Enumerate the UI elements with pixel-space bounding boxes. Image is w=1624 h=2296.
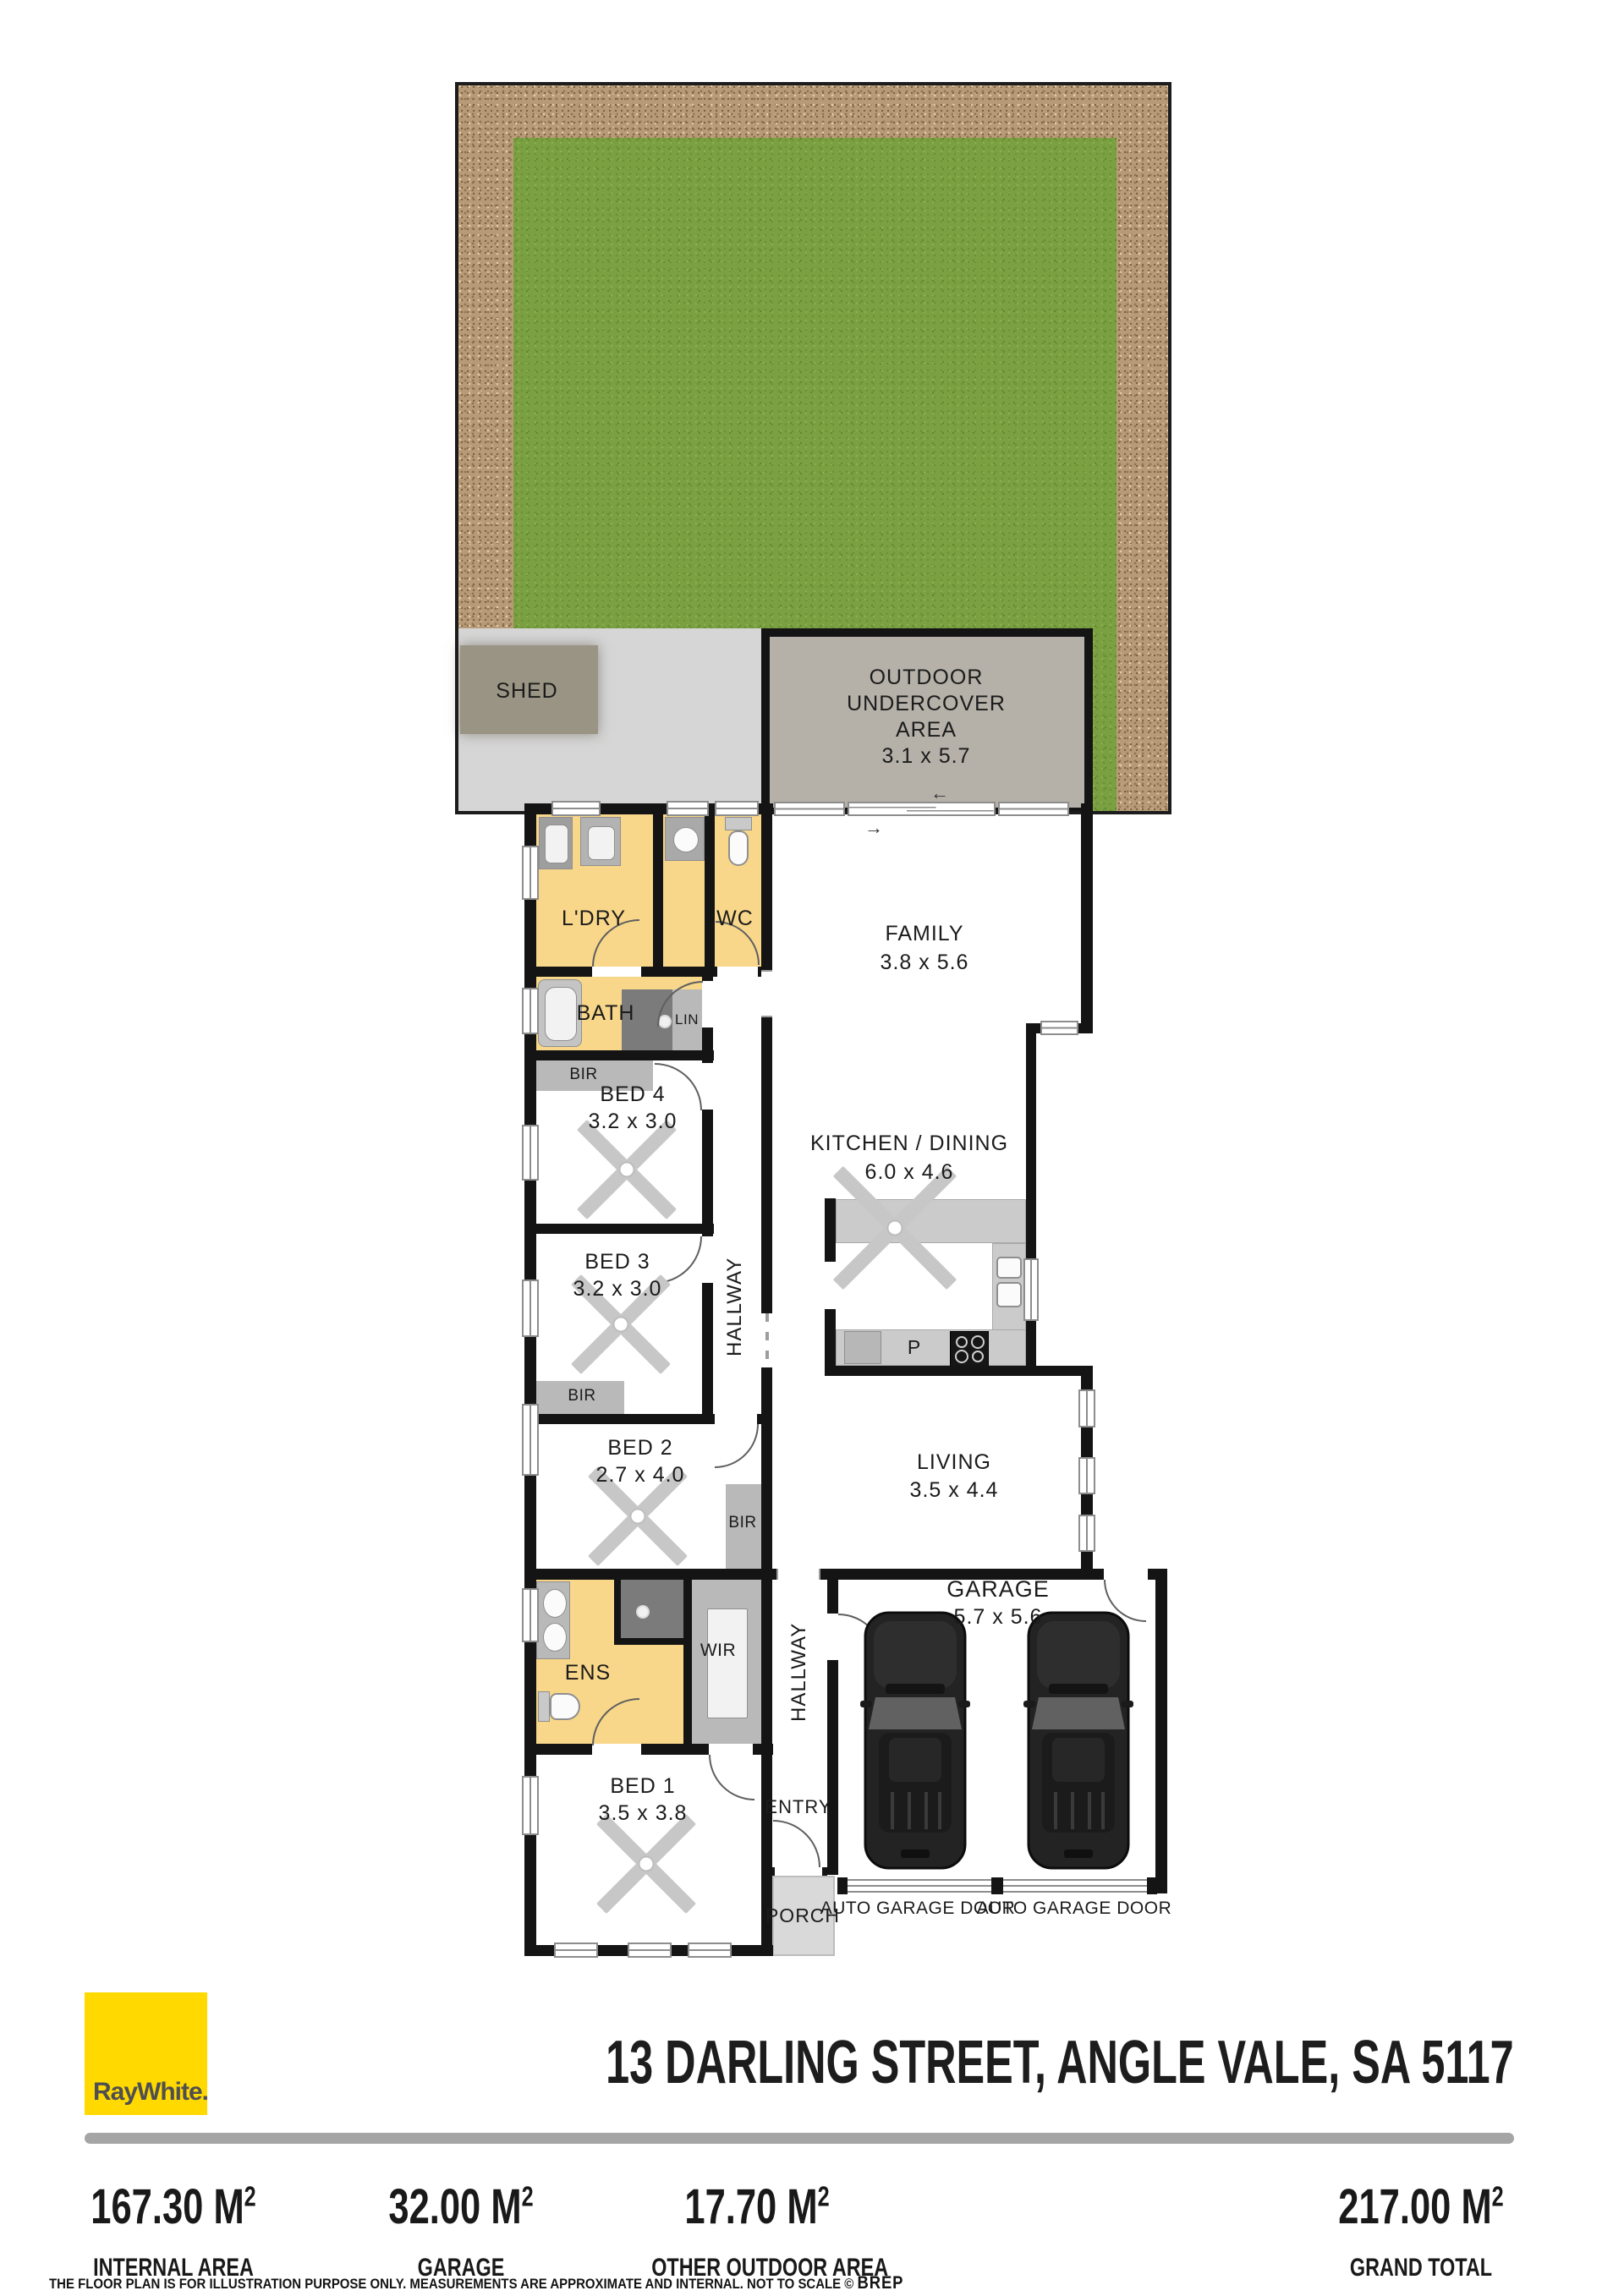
fridge-icon: [844, 1331, 881, 1364]
kitchen-label: KITCHEN / DINING: [799, 1132, 1019, 1156]
wall: [702, 977, 713, 1424]
door-gap: [715, 1414, 757, 1424]
window: [667, 801, 709, 816]
window: [1040, 1021, 1078, 1035]
stat-value: 17.70 M2: [656, 2178, 859, 2235]
wall: [524, 1224, 714, 1234]
window: [522, 1125, 539, 1181]
ensuite-shower: [621, 1580, 683, 1639]
laundry-sink-icon: [580, 817, 621, 866]
door-gap: [709, 1744, 753, 1755]
stat-value: 217.00 M2: [1319, 2178, 1522, 2235]
wall: [825, 1309, 836, 1376]
car-icon: [1023, 1609, 1133, 1871]
washer-icon: [539, 817, 573, 869]
window: [551, 801, 601, 816]
squared-sup: 2: [244, 2182, 256, 2213]
wall: [614, 1638, 689, 1645]
floorplan-page: SHED OUTDOOR UNDERCOVER AREA 3.1 x 5.7 L…: [0, 0, 1624, 2296]
family-dims: 3.8 x 5.6: [840, 951, 1009, 975]
stat-label: GRAND TOTAL: [1315, 2254, 1527, 2282]
window: [998, 802, 1069, 816]
door-gap: [827, 1614, 838, 1660]
stat-grand-total: 217.00 M2 GRAND TOTAL: [1286, 2178, 1556, 2282]
stove-icon: [950, 1331, 989, 1367]
stat-garage: 32.00 M2 GARAGE: [326, 2178, 596, 2282]
garage-label: GARAGE: [913, 1576, 1083, 1603]
toilet-bowl-icon: [728, 830, 749, 866]
kitchen-sink-icon: [996, 1257, 1022, 1279]
bed4-label: BED 4: [548, 1082, 717, 1107]
kitchen-sink2-icon: [996, 1282, 1022, 1307]
family-label: FAMILY: [840, 922, 1009, 946]
bed3-label: BED 3: [533, 1250, 702, 1274]
room-x-marker: [578, 1121, 675, 1218]
toilet-icon: [725, 817, 752, 830]
wc-label: WC: [650, 907, 820, 931]
hallway-label: HALLWAY: [787, 1600, 811, 1744]
wall: [1155, 1569, 1167, 1893]
bed1-label: BED 1: [558, 1774, 727, 1799]
stat-value: 167.30 M2: [72, 2178, 275, 2235]
ensuite-label: ENS: [503, 1661, 672, 1685]
undercover-dims: 3.1 x 5.7: [842, 743, 1011, 770]
squared-sup: 2: [522, 2182, 534, 2213]
car-icon: [860, 1609, 970, 1871]
raywhite-wordmark: RayWhite.: [93, 2078, 208, 2107]
undercover-label: OUTDOOR UNDERCOVER AREA 3.1 x 5.7: [842, 665, 1011, 770]
wall: [614, 1580, 621, 1645]
wall: [524, 1050, 714, 1060]
bed1-dims: 3.5 x 3.8: [558, 1801, 727, 1826]
stat-internal-area: 167.30 M2 INTERNAL AREA: [38, 2178, 309, 2282]
wall: [653, 814, 663, 967]
garage-door-post: [837, 1877, 848, 1894]
wall: [1026, 1023, 1036, 1376]
auto-garage-door-label: AUTO GARAGE DOOR: [973, 1899, 1176, 1919]
window: [1078, 1457, 1095, 1494]
room-x-marker: [597, 1815, 694, 1912]
window: [522, 846, 539, 900]
wall: [1081, 803, 1093, 1028]
door-swing-arrow-icon: ←: [930, 782, 949, 804]
window: [628, 1943, 672, 1958]
window: [1023, 1258, 1039, 1321]
window: [774, 802, 845, 816]
ensuite-toilet-bowl: [550, 1693, 580, 1720]
door-gap: [592, 967, 641, 977]
wall: [705, 814, 715, 967]
door-gap: [775, 1867, 822, 1876]
disclaimer: THE FLOOR PLAN IS FOR ILLUSTRATION PURPO…: [49, 2273, 903, 2293]
stat-value: 32.00 M2: [359, 2178, 562, 2235]
window: [522, 1776, 539, 1835]
entry-label: ENTRY: [760, 1796, 837, 1818]
squared-sup: 2: [818, 2182, 830, 2213]
living-dims: 3.5 x 4.4: [870, 1478, 1039, 1503]
shed-label: SHED: [442, 679, 612, 704]
kitchen-dims: 6.0 x 4.6: [799, 1160, 1019, 1185]
window: [1078, 1515, 1095, 1552]
vanity-basin-icon: [665, 817, 705, 861]
hallway-label: HALLWAY: [723, 1235, 747, 1378]
raywhite-logo: RayWhite.: [85, 1992, 207, 2115]
opening: [761, 970, 772, 1017]
disclaimer-text: THE FLOOR PLAN IS FOR ILLUSTRATION PURPO…: [49, 2276, 857, 2292]
window: [1078, 1389, 1095, 1427]
window: [522, 1404, 539, 1476]
window: [522, 1588, 539, 1642]
window: [715, 801, 759, 816]
property-address: 13 DARLING STREET, ANGLE VALE, SA 5117: [606, 2028, 1514, 2097]
ensuite-shower-head-icon: [636, 1605, 650, 1619]
door-gap: [717, 967, 758, 977]
wall: [825, 1366, 1093, 1376]
wall: [524, 1569, 773, 1580]
garage-dims: 5.7 x 5.6: [913, 1605, 1083, 1630]
opening: [776, 1569, 820, 1580]
bed2-label: BED 2: [556, 1436, 725, 1460]
window: [554, 1943, 598, 1958]
bed3-dims: 3.2 x 3.0: [533, 1277, 702, 1301]
wir-label: WIR: [693, 1641, 743, 1661]
wir-shelf: [707, 1608, 748, 1718]
door-swing-arrow-icon: →: [864, 817, 883, 839]
divider-line: [85, 2133, 1514, 2144]
brep-logo: BREP: [857, 2273, 903, 2293]
sliding-door: [848, 802, 996, 816]
garage-door-post: [1147, 1877, 1157, 1894]
bed2-dims: 2.7 x 4.0: [556, 1463, 725, 1488]
bir-label: BIR: [717, 1514, 768, 1532]
door-gap: [702, 1236, 713, 1283]
living-label: LIVING: [870, 1450, 1039, 1475]
bir-label: BIR: [541, 1066, 626, 1084]
stat-other-outdoor-area: 17.70 M2 OTHER OUTDOOR AREA: [622, 2178, 892, 2282]
ensuite-toilet-tank: [538, 1691, 550, 1722]
linen-label: LIN: [661, 1011, 712, 1028]
window: [688, 1943, 732, 1958]
yard-boundary: [455, 82, 1171, 814]
ensuite-vanity: [536, 1581, 570, 1659]
door-gap: [1104, 1569, 1148, 1580]
bir-label: BIR: [540, 1387, 624, 1406]
squared-sup: 2: [1492, 2182, 1504, 2213]
bed4-dims: 3.2 x 3.0: [548, 1110, 717, 1134]
pantry-label: P: [885, 1336, 944, 1359]
cased-opening: [761, 1313, 772, 1367]
garage-door-post: [991, 1877, 1003, 1894]
wall: [683, 1580, 692, 1744]
